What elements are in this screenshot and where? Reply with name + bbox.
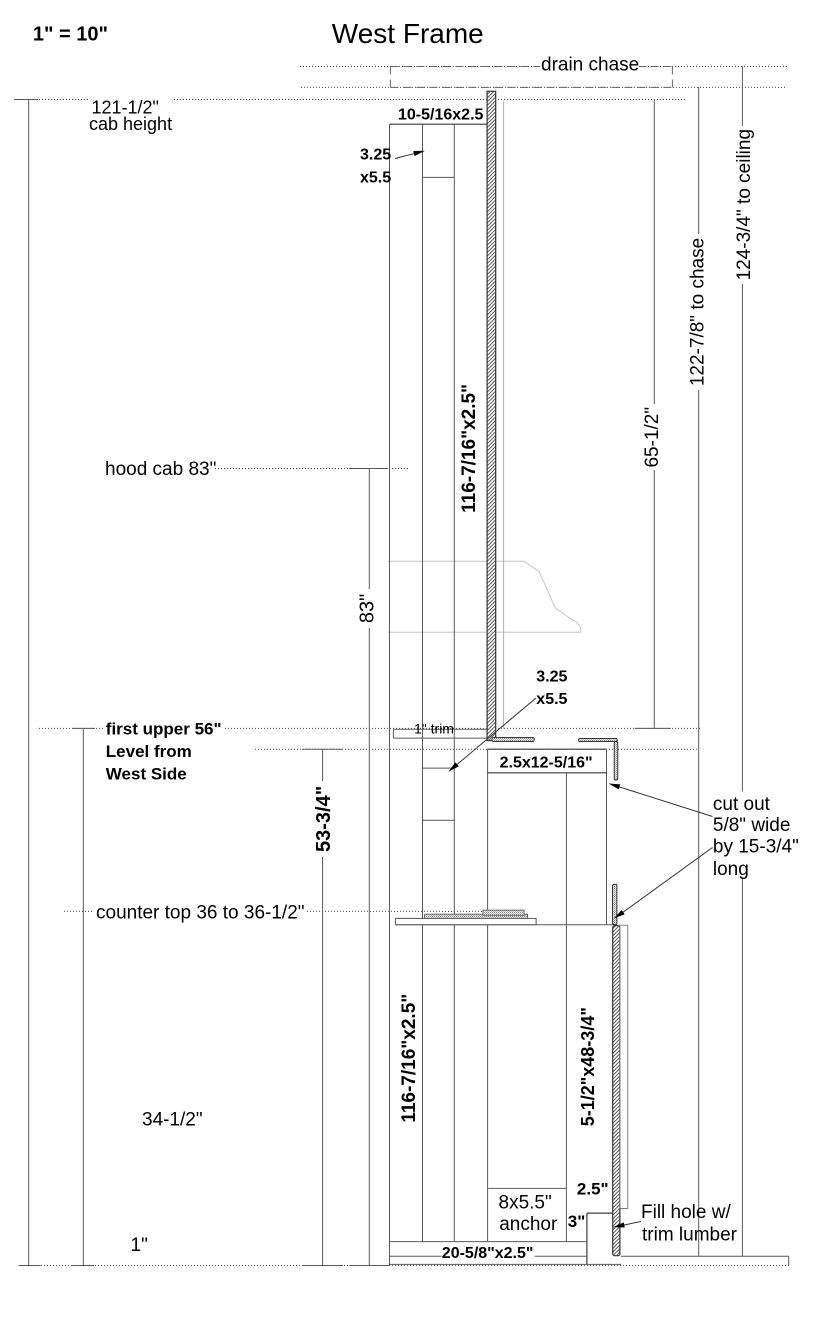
svg-text:hood cab 83": hood cab 83" (105, 459, 216, 480)
svg-text:drain chase: drain chase (541, 55, 639, 76)
svg-text:long: long (713, 859, 749, 880)
svg-text:3": 3" (568, 1212, 586, 1231)
svg-text:Level from: Level from (106, 742, 192, 761)
svg-text:53-3/4": 53-3/4" (313, 786, 335, 852)
svg-text:Fill hole w/: Fill hole w/ (641, 1202, 731, 1223)
svg-text:65-1/2": 65-1/2" (642, 407, 663, 468)
svg-text:116-7/16"x2.5": 116-7/16"x2.5" (459, 384, 480, 513)
svg-text:counter top 36 to 36-1/2": counter top 36 to 36-1/2" (96, 903, 305, 924)
svg-text:124-3/4" to ceiling: 124-3/4" to ceiling (734, 129, 755, 280)
svg-text:83": 83" (356, 594, 378, 623)
svg-text:cab height: cab height (89, 114, 172, 134)
svg-text:8x5.5": 8x5.5" (499, 1192, 552, 1213)
svg-text:2.5": 2.5" (577, 1180, 609, 1199)
svg-text:20-5/8"x2.5": 20-5/8"x2.5" (442, 1245, 534, 1262)
svg-text:2.5x12-5/16": 2.5x12-5/16" (500, 755, 593, 772)
svg-text:x5.5: x5.5 (360, 170, 391, 187)
svg-text:34-1/2": 34-1/2" (142, 1110, 203, 1131)
svg-text:3.25: 3.25 (360, 147, 391, 164)
svg-text:116-7/16"x2.5": 116-7/16"x2.5" (399, 994, 420, 1123)
svg-text:cut out: cut out (713, 794, 771, 815)
svg-text:West Side: West Side (106, 764, 187, 783)
svg-text:x5.5: x5.5 (536, 691, 567, 708)
svg-text:3.25: 3.25 (536, 669, 567, 686)
svg-text:5/8" wide: 5/8" wide (713, 815, 791, 836)
svg-text:1" = 10": 1" = 10" (33, 24, 108, 46)
svg-text:10-5/16x2.5: 10-5/16x2.5 (398, 106, 484, 123)
svg-text:122-7/8" to chase: 122-7/8" to chase (688, 238, 709, 386)
svg-text:West Frame: West Frame (332, 18, 484, 49)
svg-text:5-1/2"x48-3/4": 5-1/2"x48-3/4" (578, 1007, 598, 1126)
svg-text:1" trim: 1" trim (414, 721, 454, 737)
svg-text:anchor: anchor (499, 1214, 558, 1235)
svg-text:1": 1" (131, 1235, 148, 1256)
svg-text:by 15-3/4": by 15-3/4" (713, 837, 799, 858)
svg-text:trim lumber: trim lumber (642, 1224, 738, 1245)
svg-text:first upper 56": first upper 56" (106, 719, 222, 738)
